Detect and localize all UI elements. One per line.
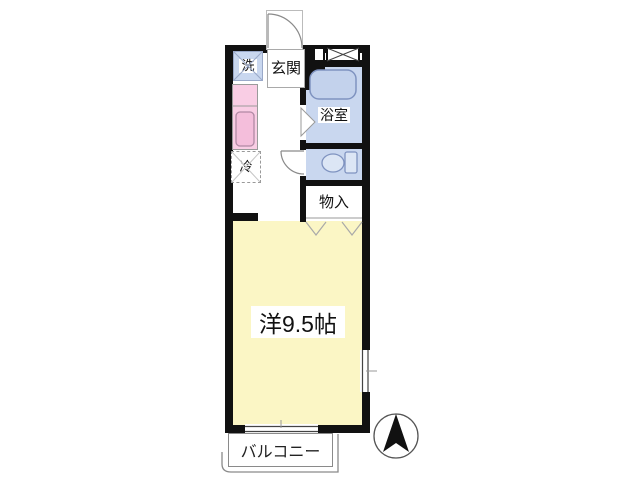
- compass-icon: [374, 414, 418, 458]
- refrigerator-label-text: 冷: [237, 160, 254, 175]
- refrigerator-label: 冷: [231, 151, 261, 183]
- main-room-label-text: 洋9.5帖: [259, 305, 337, 339]
- kitchen-counter: [232, 84, 258, 150]
- washer-label: 洗: [233, 51, 263, 81]
- toilet-door-swing-icon: [281, 151, 304, 174]
- window-right-gap: [360, 350, 372, 392]
- floorplan-canvas: 玄関 洗 浴室 物入 冷 洋9.5帖 バルコニー: [0, 0, 640, 480]
- balcony-label: バルコニー: [228, 436, 333, 464]
- entrance-label: 玄関: [267, 49, 305, 88]
- storage-label-text: 物入: [319, 191, 349, 212]
- pipe-space-small-box: [313, 47, 325, 62]
- washer-label-text: 洗: [239, 59, 256, 74]
- wall-room-stub: [225, 213, 258, 221]
- wall-bottom-left: [225, 425, 245, 433]
- wall-bath-toilet: [300, 143, 362, 149]
- entrance-label-text: 玄関: [269, 60, 303, 77]
- bathroom-label-text: 浴室: [318, 107, 350, 123]
- pipe-space-x-box: [326, 47, 360, 62]
- toilet-floor: [306, 149, 362, 180]
- storage-label: 物入: [306, 186, 362, 216]
- wall-right-upper: [362, 45, 370, 350]
- bathroom-label: 浴室: [306, 104, 362, 126]
- balcony-label-text: バルコニー: [241, 438, 321, 462]
- entrance-door-frame: [266, 10, 303, 50]
- main-room-label: 洋9.5帖: [251, 306, 345, 338]
- wall-bottom-right: [318, 425, 370, 433]
